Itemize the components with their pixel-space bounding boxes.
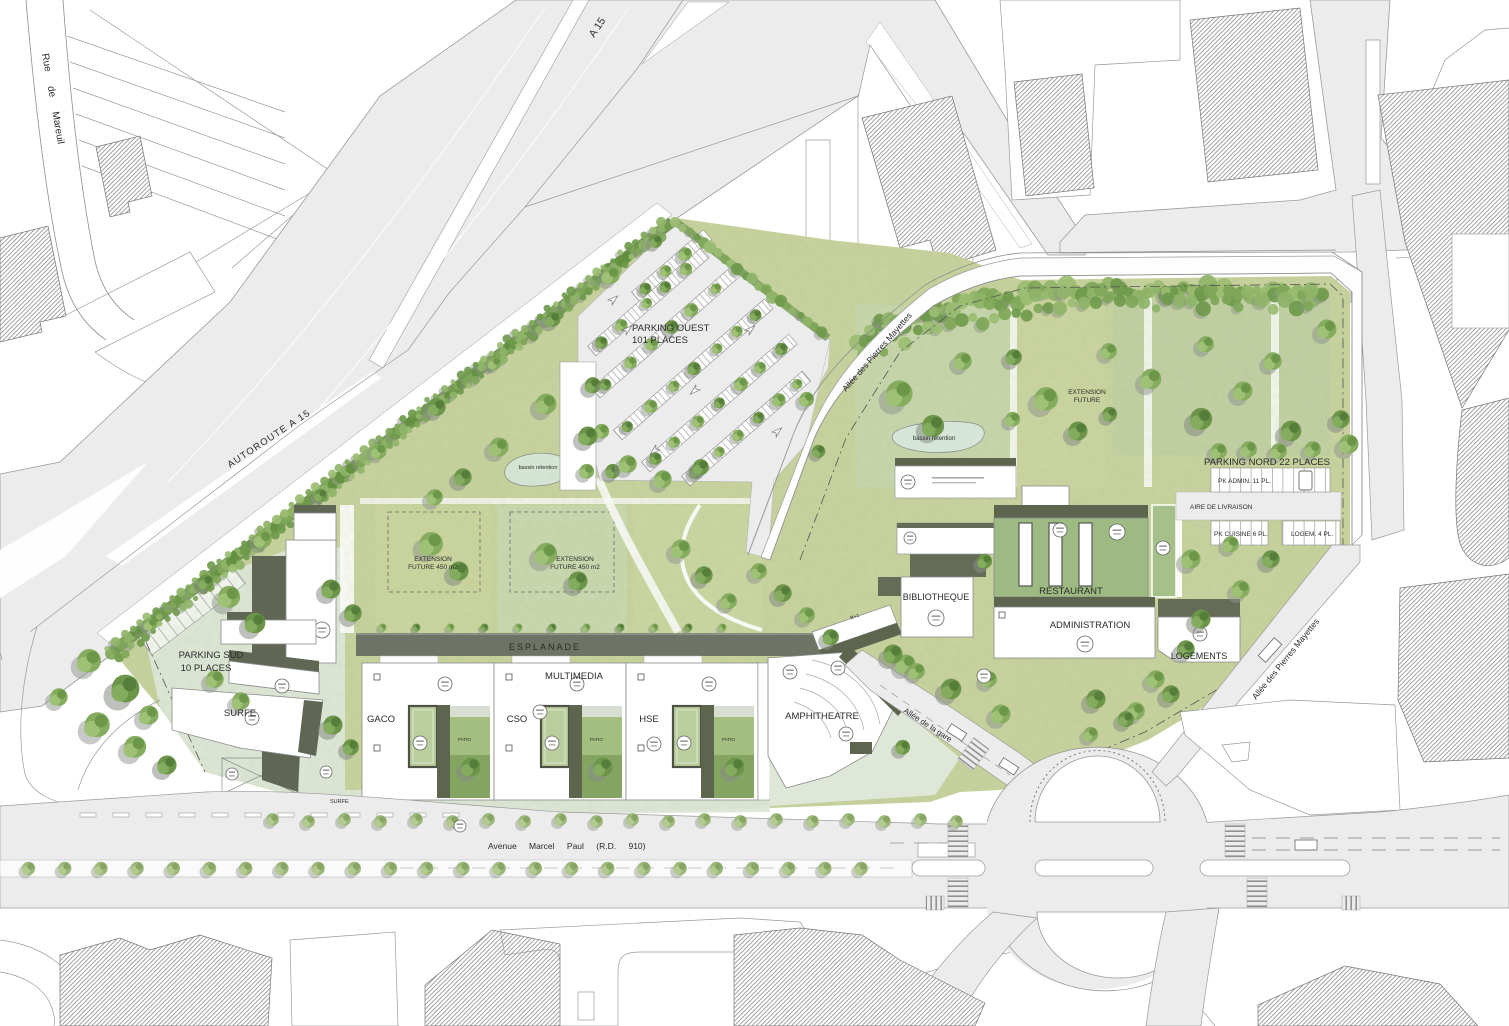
svg-text:EXTENSION: EXTENSION bbox=[1068, 389, 1106, 396]
svg-text:BIBLIOTHEQUE: BIBLIOTHEQUE bbox=[903, 592, 970, 602]
svg-text:FUTURE 450 m2: FUTURE 450 m2 bbox=[408, 564, 458, 571]
svg-text:ESPLANADE: ESPLANADE bbox=[509, 642, 581, 652]
svg-text:HSE: HSE bbox=[639, 714, 659, 725]
svg-text:ADMINISTRATION: ADMINISTRATION bbox=[1050, 620, 1131, 631]
svg-text:bassin rétention: bassin rétention bbox=[913, 436, 955, 442]
svg-text:AMPHITHEATRE: AMPHITHEATRE bbox=[785, 711, 859, 722]
svg-text:PATIO: PATIO bbox=[722, 737, 735, 742]
svg-text:10 PLACES: 10 PLACES bbox=[181, 663, 232, 674]
svg-text:EXTENSION: EXTENSION bbox=[414, 556, 452, 563]
svg-text:GACO: GACO bbox=[367, 714, 395, 725]
svg-text:PATIO: PATIO bbox=[590, 737, 603, 742]
svg-text:SURFE: SURFE bbox=[224, 708, 256, 719]
svg-text:FUTURE 450 m2: FUTURE 450 m2 bbox=[550, 564, 600, 571]
svg-text:PK CUISINE 6 PL.: PK CUISINE 6 PL. bbox=[1214, 531, 1268, 538]
svg-text:PATIO: PATIO bbox=[458, 737, 471, 742]
svg-text:bassin rétention: bassin rétention bbox=[519, 465, 558, 471]
svg-text:LOGEM. 4 PL.: LOGEM. 4 PL. bbox=[1291, 531, 1333, 538]
svg-text:PARKING SUD: PARKING SUD bbox=[179, 650, 244, 661]
svg-text:SURFE: SURFE bbox=[330, 799, 349, 805]
svg-text:MULTIMEDIA: MULTIMEDIA bbox=[545, 671, 604, 682]
svg-text:EXTENSION: EXTENSION bbox=[556, 556, 594, 563]
svg-text:PARKING OUEST: PARKING OUEST bbox=[632, 323, 710, 334]
svg-text:CSO: CSO bbox=[507, 714, 528, 725]
svg-text:Avenue Marcel Paul (R.D. 91: Avenue Marcel Paul (R.D. 910) bbox=[488, 841, 646, 851]
svg-text:101 PLACES: 101 PLACES bbox=[632, 335, 688, 346]
svg-text:FUTURE: FUTURE bbox=[1074, 397, 1101, 404]
svg-text:LOGEMENTS: LOGEMENTS bbox=[1171, 651, 1228, 661]
svg-text:PK ADMIN. 11 PL.: PK ADMIN. 11 PL. bbox=[1218, 478, 1271, 485]
svg-text:RESTAURANT: RESTAURANT bbox=[1039, 586, 1103, 597]
svg-text:AIRE DE LIVRAISON: AIRE DE LIVRAISON bbox=[1190, 504, 1253, 511]
svg-text:PARKING NORD 22 PLACES: PARKING NORD 22 PLACES bbox=[1204, 457, 1330, 468]
